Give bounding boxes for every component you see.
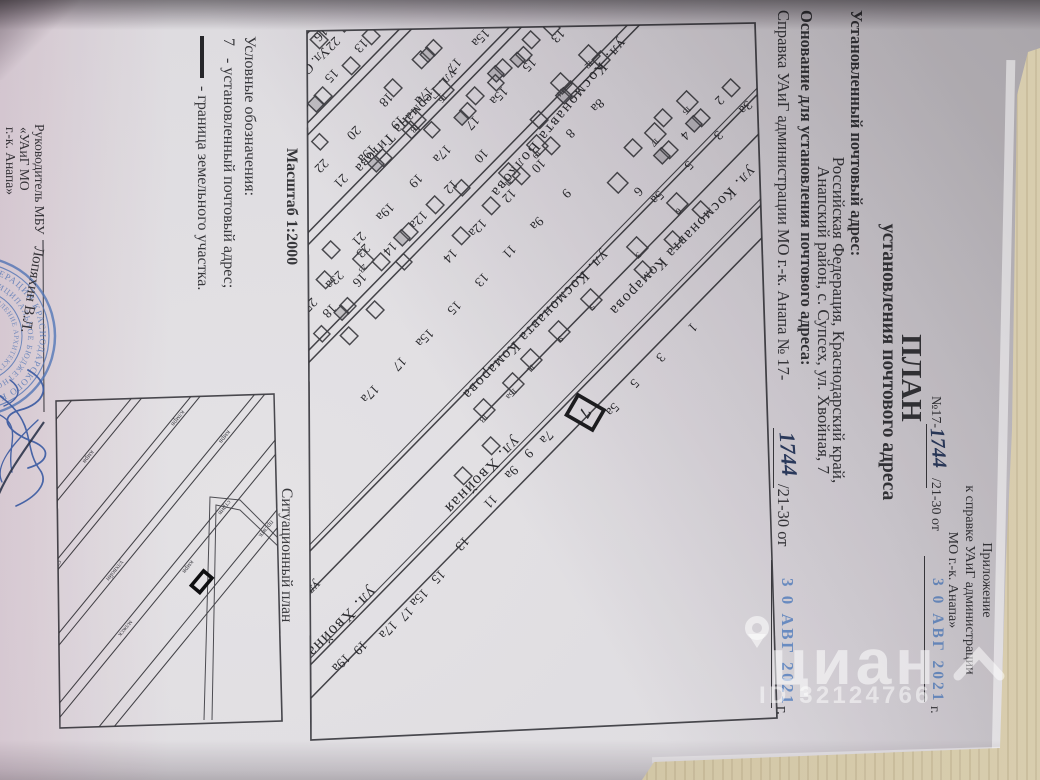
svg-text:3: 3 [711,128,727,143]
svg-text:клмрв: клмрв [297,399,315,419]
svg-text:21: 21 [331,171,351,191]
svg-text:25: 25 [300,295,320,315]
svg-text:18: 18 [376,90,396,110]
svg-text:15а: 15а [413,326,437,350]
svg-text:улхвойн: улхвойн [104,559,126,583]
svg-text:5а: 5а [648,188,668,208]
svg-text:13: 13 [351,36,371,56]
svg-text:19а: 19а [373,200,397,224]
svg-text:11: 11 [500,242,520,262]
svg-text:24: 24 [247,222,267,242]
svg-text:прсвтк: прсвтк [257,519,276,540]
svg-text:улхвойн: улхвойн [336,419,358,443]
svg-text:22: 22 [312,156,332,176]
svg-text:15: 15 [444,298,464,318]
svg-text:27: 27 [247,349,267,369]
svg-text:17а: 17а [358,382,382,406]
svg-text:15: 15 [322,66,342,86]
svg-text:4: 4 [678,128,694,143]
svg-text:15а: 15а [407,586,431,610]
svg-text:5: 5 [627,376,643,391]
svg-text:15а: 15а [504,386,520,402]
svg-text:8: 8 [563,126,579,141]
svg-text:15: 15 [428,567,448,587]
svg-text:13: 13 [472,270,492,290]
svg-text:1: 1 [770,68,785,83]
svg-text:5: 5 [681,158,697,173]
svg-text:ул. Космонавта Комарова: ул. Космонавта Комарова [606,163,760,319]
svg-text:11: 11 [481,492,501,512]
svg-text:17: 17 [389,354,409,374]
svg-text:8а: 8а [588,96,608,116]
svg-text:19: 19 [263,126,283,146]
svg-text:17а: 17а [376,618,400,642]
svg-text:млжск: млжск [321,459,340,479]
svg-text:ул. Х: ул. Х [292,577,324,609]
svg-text:19: 19 [406,171,426,191]
svg-text:25а: 25а [270,322,294,346]
svg-text:10: 10 [471,146,491,166]
svg-text:17а: 17а [430,142,454,166]
svg-text:стрнв: стрнв [47,559,64,578]
svg-text:6: 6 [631,184,647,199]
svg-text:9: 9 [559,186,575,201]
svg-text:1: 1 [685,320,700,335]
svg-text:19а: 19а [329,651,353,675]
svg-text:14: 14 [440,246,460,266]
svg-text:12: 12 [441,177,461,197]
svg-text:3: 3 [653,350,669,365]
svg-text:9а: 9а [527,214,547,234]
svg-text:20: 20 [344,123,364,143]
svg-text:3а: 3а [736,98,756,118]
svg-text:2: 2 [712,93,727,108]
svg-text:прсвтк: прсвтк [25,659,44,680]
